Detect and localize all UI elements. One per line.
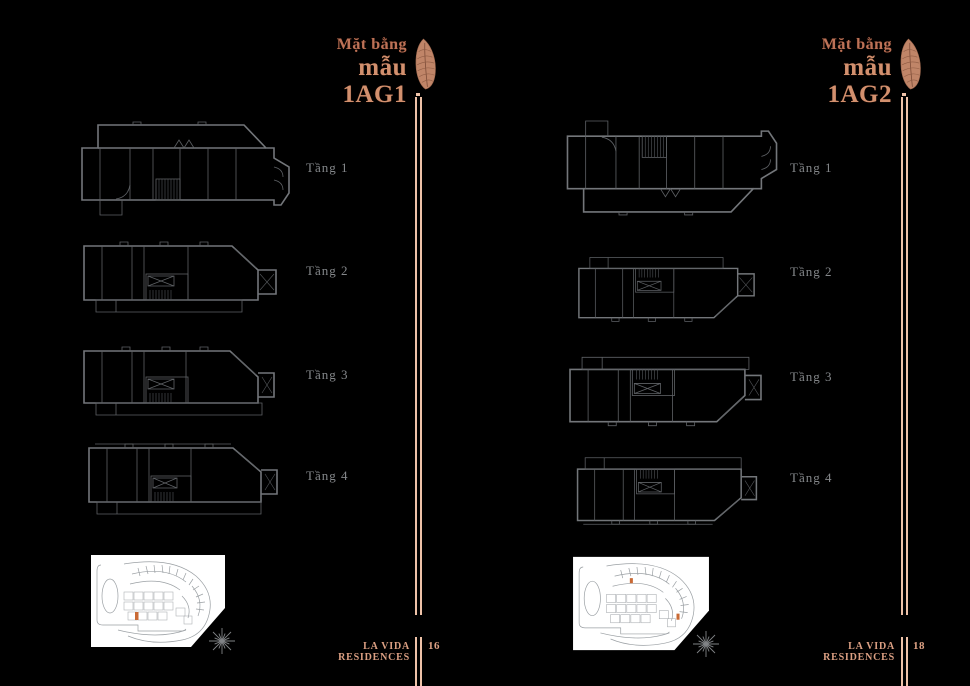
floor-label-tang-1: Tầng 1 bbox=[790, 160, 832, 176]
page-title-line1: Mặt bằng bbox=[780, 36, 892, 54]
floor-plan-1ag1-tang-3 bbox=[82, 343, 278, 420]
feather-icon bbox=[894, 37, 925, 91]
floor-label-tang-4: Tầng 4 bbox=[790, 470, 832, 486]
footer-brand: LA VIDA RESIDENCES bbox=[785, 641, 895, 663]
floor-label-tang-1: Tầng 1 bbox=[306, 160, 348, 176]
site-map-highlight bbox=[630, 578, 633, 583]
floor-label-tang-2: Tầng 2 bbox=[306, 263, 348, 279]
page-title-line2: mẫu 1AG2 bbox=[780, 54, 892, 109]
floor-plan-1ag2-tang-4 bbox=[568, 452, 765, 530]
divider-cap bbox=[416, 93, 420, 96]
center-divider bbox=[415, 97, 422, 615]
floor-label-tang-4: Tầng 4 bbox=[306, 468, 348, 484]
page-title-line1: Mặt bằng bbox=[295, 36, 407, 54]
page-title-1ag1: Mặt bằng mẫu 1AG1 bbox=[295, 36, 407, 109]
floor-plan-1ag2-tang-3 bbox=[568, 352, 765, 430]
floor-plan-1ag1-tang-1 bbox=[78, 117, 292, 218]
floor-plan-1ag1-tang-2 bbox=[82, 238, 278, 318]
site-map-highlight bbox=[677, 614, 680, 620]
compass-icon bbox=[206, 625, 238, 657]
floor-plan-1ag1-tang-4 bbox=[85, 438, 280, 520]
divider-cap bbox=[902, 93, 906, 96]
center-divider bbox=[901, 97, 908, 615]
brochure-spread: Mặt bằng mẫu 1AG1 Tầng 1 Tầng 2 Tầng 3 T… bbox=[0, 0, 970, 686]
footer-page-number: 16 bbox=[428, 640, 440, 652]
footer-page-number: 18 bbox=[913, 640, 925, 652]
floor-label-tang-3: Tầng 3 bbox=[306, 367, 348, 383]
footer-divider bbox=[415, 637, 422, 686]
floor-label-tang-2: Tầng 2 bbox=[790, 264, 832, 280]
page-title-1ag2: Mặt bằng mẫu 1AG2 bbox=[780, 36, 892, 109]
footer-divider bbox=[901, 637, 908, 686]
floor-plan-1ag2-tang-1 bbox=[563, 118, 780, 220]
footer-brand: LA VIDA RESIDENCES bbox=[300, 641, 410, 663]
site-map-highlight bbox=[135, 612, 139, 620]
floor-plan-1ag2-tang-2 bbox=[568, 252, 765, 325]
floor-label-tang-3: Tầng 3 bbox=[790, 369, 832, 385]
page-title-line2: mẫu 1AG1 bbox=[295, 54, 407, 109]
feather-icon bbox=[409, 37, 440, 91]
compass-icon bbox=[690, 628, 722, 660]
